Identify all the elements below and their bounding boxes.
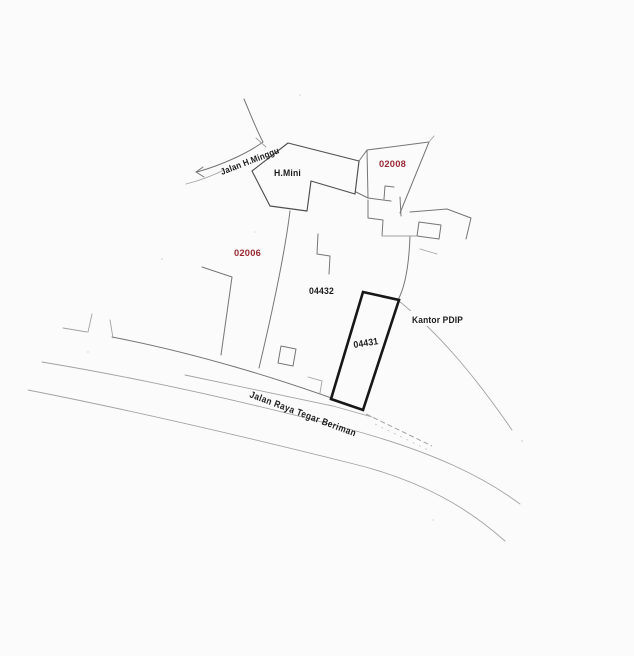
- parcel-label-04432: 04432: [309, 286, 334, 297]
- parcel-label-02008: 02008: [379, 159, 406, 170]
- road-jalan-raya-edges: [28, 362, 520, 541]
- structures-cluster-lines: [368, 197, 471, 254]
- annotation-kantor-pdip: Kantor PDIP: [412, 315, 463, 326]
- parcel-label-02006: 02006: [234, 248, 261, 259]
- cadastral-map: Jalan H.Minggu H.Mini 02008 02006 04432 …: [0, 0, 634, 656]
- small-building-near-road: [278, 346, 296, 366]
- parcel-04431-outline: [331, 292, 399, 410]
- building-label-h-mini: H.Mini: [274, 168, 301, 179]
- scanned-map-page: Jalan H.Minggu H.Mini 02008 02006 04432 …: [0, 0, 634, 656]
